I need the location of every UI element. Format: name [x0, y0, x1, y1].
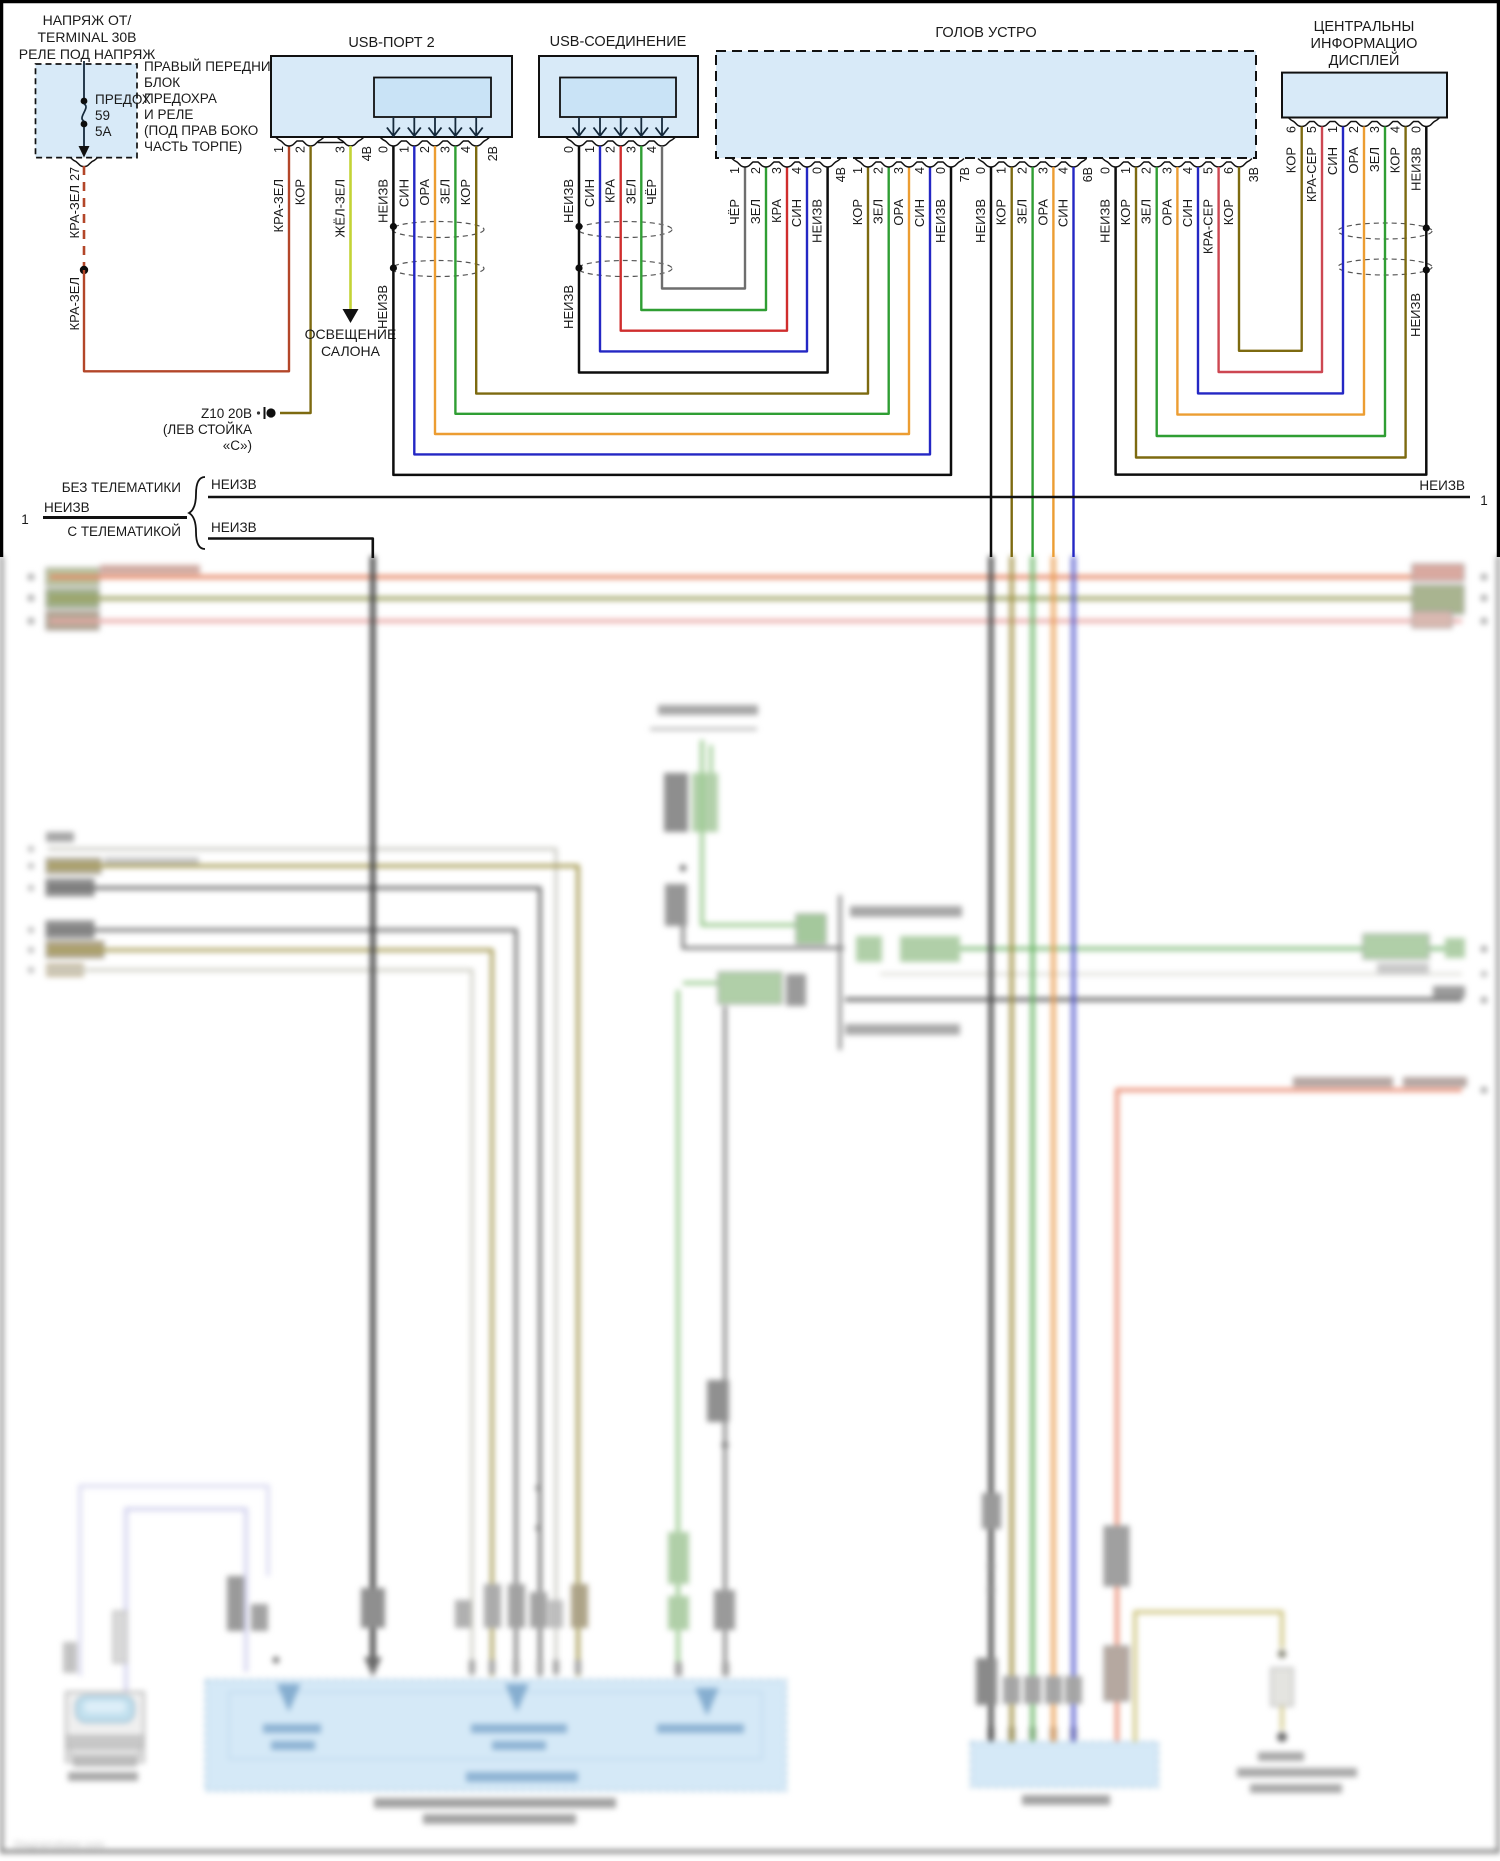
svg-text:1: 1 [272, 146, 286, 153]
svg-text:4: 4 [1181, 167, 1195, 174]
svg-text:4: 4 [459, 146, 473, 153]
svg-text:0: 0 [1099, 167, 1113, 174]
svg-text:КОР: КОР [458, 179, 473, 205]
svg-text:5: 5 [1305, 126, 1319, 133]
svg-text:1: 1 [397, 146, 411, 153]
svg-text:3В: 3В [1247, 167, 1261, 182]
svg-text:СИН: СИН [1325, 147, 1340, 175]
svg-text:3: 3 [1036, 167, 1050, 174]
svg-text:5: 5 [1202, 167, 1216, 174]
svg-text:НЕИЗВ: НЕИЗВ [973, 199, 988, 243]
svg-text:3: 3 [624, 146, 638, 153]
svg-text:2: 2 [872, 167, 886, 174]
svg-text:ЖЁЛ-ЗЕЛ: ЖЁЛ-ЗЕЛ [333, 179, 348, 238]
svg-text:4В: 4В [834, 167, 848, 182]
svg-text:КРА: КРА [603, 179, 618, 203]
svg-text:ОРА: ОРА [417, 179, 432, 206]
svg-text:НЕИЗВ: НЕИЗВ [561, 179, 576, 223]
svg-text:3: 3 [1160, 167, 1174, 174]
svg-text:1: 1 [1119, 167, 1133, 174]
svg-text:1: 1 [995, 167, 1009, 174]
svg-text:4В: 4В [360, 146, 374, 161]
svg-text:ДИСПЛЕЙ: ДИСПЛЕЙ [1329, 51, 1400, 69]
svg-text:ПРЕДОХРА: ПРЕДОХРА [144, 91, 217, 106]
svg-text:ЗЕЛ: ЗЕЛ [748, 199, 763, 224]
svg-text:ЦЕНТРАЛЬНЫ: ЦЕНТРАЛЬНЫ [1314, 19, 1415, 35]
svg-text:ЗЕЛ: ЗЕЛ [437, 179, 452, 204]
svg-text:И РЕЛЕ: И РЕЛЕ [144, 107, 193, 122]
svg-text:НЕИЗВ: НЕИЗВ [211, 477, 257, 492]
svg-text:КОР: КОР [850, 199, 865, 225]
svg-text:ОРА: ОРА [1159, 199, 1174, 226]
svg-text:ОРА: ОРА [1346, 147, 1361, 174]
svg-text:(ПОД ПРАВ БОКО: (ПОД ПРАВ БОКО [144, 123, 258, 138]
svg-text:КОР: КОР [994, 199, 1009, 225]
svg-text:КРА-ЗЕЛ: КРА-ЗЕЛ [67, 277, 82, 330]
svg-text:БЛОК: БЛОК [144, 75, 180, 90]
svg-text:САЛОНА: САЛОНА [321, 343, 381, 359]
svg-text:ИНФОРМАЦИО: ИНФОРМАЦИО [1311, 36, 1418, 52]
svg-text:1: 1 [728, 167, 742, 174]
svg-text:1: 1 [1480, 493, 1488, 508]
svg-text:4: 4 [1389, 126, 1403, 133]
svg-text:НЕИЗВ: НЕИЗВ [375, 285, 390, 329]
svg-text:2: 2 [1016, 167, 1030, 174]
svg-text:ПРАВЫЙ ПЕРЕДНИЙ: ПРАВЫЙ ПЕРЕДНИЙ [144, 59, 280, 74]
svg-text:«С»): «С») [223, 438, 252, 453]
svg-text:КРА: КРА [769, 199, 784, 223]
svg-text:РЕЛЕ ПОД НАПРЯЖ: РЕЛЕ ПОД НАПРЯЖ [19, 46, 156, 62]
svg-text:ЗЕЛ: ЗЕЛ [1367, 147, 1382, 172]
svg-text:3: 3 [438, 146, 452, 153]
svg-text:4: 4 [790, 167, 804, 174]
svg-text:6: 6 [1285, 126, 1299, 133]
svg-text:КРА-ЗЕЛ: КРА-ЗЕЛ [271, 179, 286, 232]
svg-text:0: 0 [934, 167, 948, 174]
svg-text:КОР: КОР [293, 179, 308, 205]
svg-text:НЕИЗВ: НЕИЗВ [1408, 293, 1423, 337]
svg-text:7В: 7В [958, 167, 972, 182]
svg-text:1: 1 [21, 512, 29, 527]
svg-text:2: 2 [294, 146, 308, 153]
svg-text:НЕИЗВ: НЕИЗВ [44, 500, 90, 515]
svg-text:НЕИЗВ: НЕИЗВ [561, 285, 576, 329]
svg-text:НЕИЗВ: НЕИЗВ [933, 199, 948, 243]
svg-text:USB-ПОРТ 2: USB-ПОРТ 2 [348, 35, 434, 51]
svg-text:0: 0 [376, 146, 390, 153]
svg-text:ОРА: ОРА [891, 199, 906, 226]
svg-text:КОР: КОР [1284, 147, 1299, 173]
svg-text:0: 0 [1409, 126, 1423, 133]
svg-text:Z10 20В: Z10 20В [201, 406, 252, 421]
svg-text:ЗЕЛ: ЗЕЛ [871, 199, 886, 224]
svg-text:1: 1 [1326, 126, 1340, 133]
svg-text:КРА-СЕР: КРА-СЕР [1304, 147, 1319, 202]
svg-text:БЕЗ ТЕЛЕМАТИКИ: БЕЗ ТЕЛЕМАТИКИ [62, 480, 181, 495]
svg-text:1: 1 [851, 167, 865, 174]
svg-text:ЧЁР: ЧЁР [644, 179, 659, 205]
svg-text:СИН: СИН [789, 199, 804, 227]
svg-text:НЕИЗВ: НЕИЗВ [1408, 147, 1423, 191]
svg-text:2: 2 [1347, 126, 1361, 133]
svg-text:КРА-ЗЕЛ: КРА-ЗЕЛ [67, 185, 82, 238]
svg-text:TERMINAL 30В: TERMINAL 30В [37, 29, 136, 45]
svg-text:ЧАСТЬ ТОРПЕ): ЧАСТЬ ТОРПЕ) [144, 139, 242, 154]
svg-text:3: 3 [892, 167, 906, 174]
svg-text:КОР: КОР [1388, 147, 1403, 173]
svg-text:0: 0 [974, 167, 988, 174]
svg-text:2В: 2В [486, 146, 500, 161]
svg-text:3: 3 [334, 146, 348, 153]
svg-text:ОРА: ОРА [1035, 199, 1050, 226]
svg-text:СИН: СИН [912, 199, 927, 227]
svg-text:6: 6 [1222, 167, 1236, 174]
svg-text:USB-СОЕДИНЕНИЕ: USB-СОЕДИНЕНИЕ [550, 34, 687, 50]
svg-text:КОР: КОР [1118, 199, 1133, 225]
svg-text:27: 27 [68, 167, 82, 181]
svg-text:ЧЁР: ЧЁР [727, 199, 742, 225]
svg-text:0: 0 [562, 146, 576, 153]
svg-text:ЗЕЛ: ЗЕЛ [1015, 199, 1030, 224]
svg-text:4: 4 [645, 146, 659, 153]
svg-text:0: 0 [811, 167, 825, 174]
svg-text:СИН: СИН [582, 179, 597, 207]
svg-text:ГОЛОВ УСТРО: ГОЛОВ УСТРО [935, 25, 1036, 41]
svg-text:6В: 6В [1081, 167, 1095, 182]
svg-text:СИН: СИН [1180, 199, 1195, 227]
svg-text:4: 4 [913, 167, 927, 174]
svg-text:КРА-СЕР: КРА-СЕР [1201, 199, 1216, 254]
svg-text:ЗЕЛ: ЗЕЛ [1139, 199, 1154, 224]
svg-text:СИН: СИН [396, 179, 411, 207]
svg-text:НЕИЗВ: НЕИЗВ [211, 520, 257, 535]
svg-text:НАПРЯЖ ОТ/: НАПРЯЖ ОТ/ [43, 12, 132, 28]
svg-text:5А: 5А [95, 124, 112, 139]
svg-text:3: 3 [770, 167, 784, 174]
svg-text:НЕИЗВ: НЕИЗВ [375, 179, 390, 223]
svg-text:(ЛЕВ СТОЙКА: (ЛЕВ СТОЙКА [163, 422, 252, 437]
svg-text:2: 2 [418, 146, 432, 153]
svg-text:59: 59 [95, 108, 110, 123]
svg-text:НЕИЗВ: НЕИЗВ [810, 199, 825, 243]
svg-text:2: 2 [749, 167, 763, 174]
svg-text:НЕИЗВ: НЕИЗВ [1098, 199, 1113, 243]
svg-text:1: 1 [583, 146, 597, 153]
svg-text:2: 2 [1140, 167, 1154, 174]
svg-text:НЕИЗВ: НЕИЗВ [1419, 478, 1465, 493]
svg-text:3: 3 [1368, 126, 1382, 133]
svg-text:ЗЕЛ: ЗЕЛ [623, 179, 638, 204]
svg-text:С ТЕЛЕМАТИКОЙ: С ТЕЛЕМАТИКОЙ [67, 524, 181, 539]
svg-text:ПРЕДОХ: ПРЕДОХ [95, 92, 151, 107]
svg-text:2: 2 [604, 146, 618, 153]
svg-text:СИН: СИН [1056, 199, 1071, 227]
svg-text:4: 4 [1057, 167, 1071, 174]
svg-text:КОР: КОР [1221, 199, 1236, 225]
